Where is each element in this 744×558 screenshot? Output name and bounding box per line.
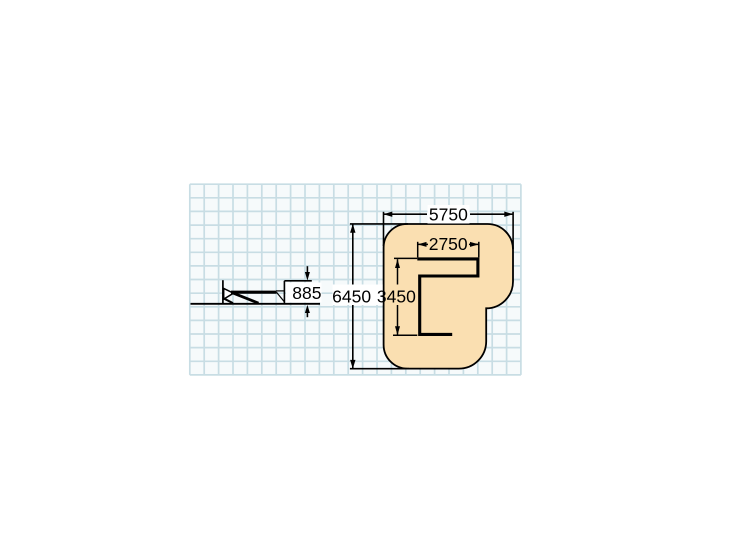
svg-text:6450: 6450 [332, 286, 371, 306]
svg-text:5750: 5750 [429, 204, 468, 224]
svg-text:3450: 3450 [377, 286, 416, 306]
svg-text:885: 885 [292, 283, 321, 303]
svg-text:2750: 2750 [429, 234, 468, 254]
